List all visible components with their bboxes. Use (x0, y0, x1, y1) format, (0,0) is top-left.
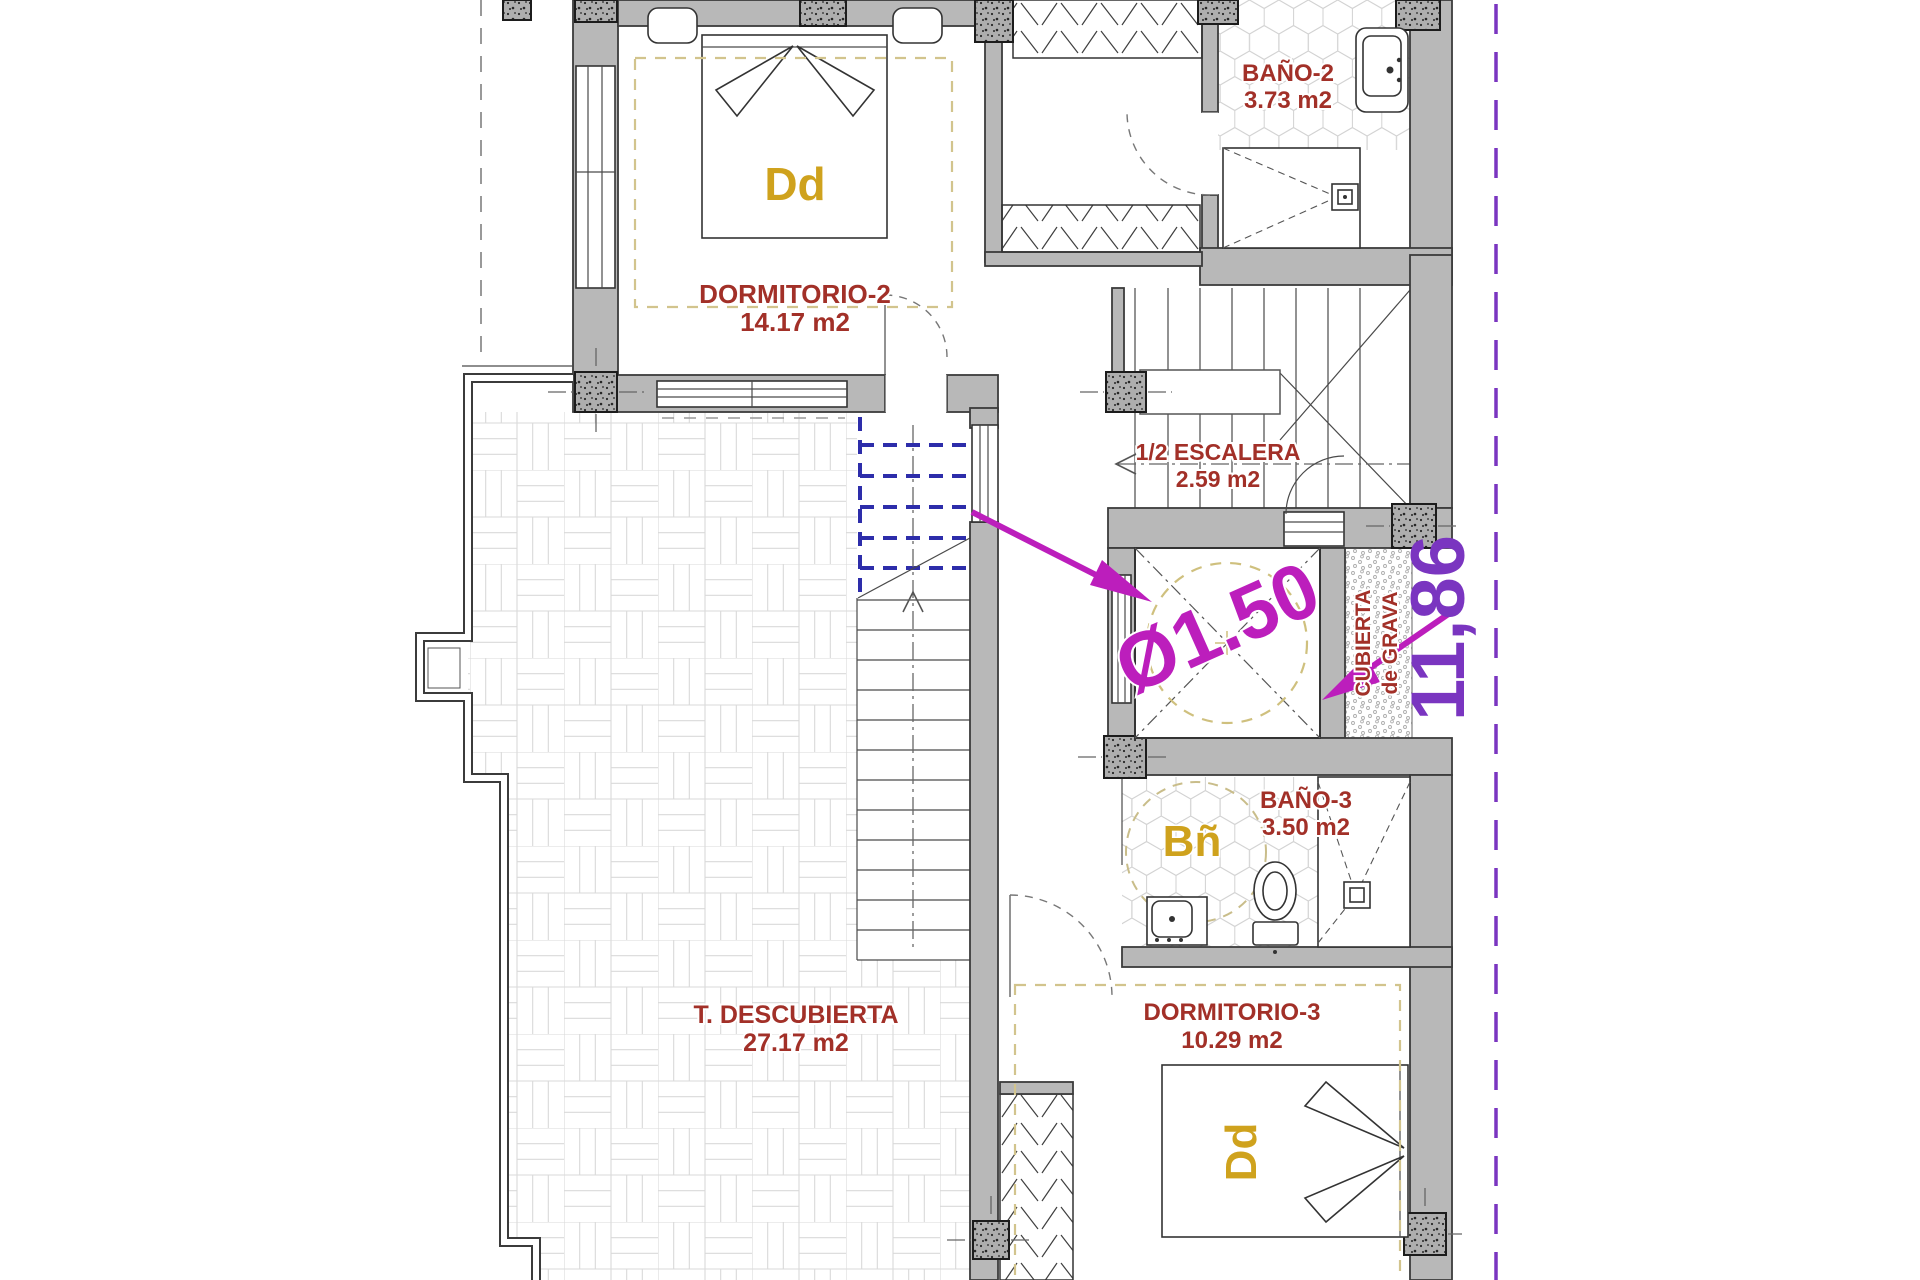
sink-bano2 (1356, 28, 1408, 112)
label-dormitorio2-area: 14.17 m2 (740, 307, 850, 337)
label-dormitorio2-name: DORMITORIO-2 (699, 279, 891, 309)
door-gap-dormitorio2 (885, 375, 947, 412)
label-right-dimension: 11,86 (1396, 535, 1481, 721)
nightstand-right (893, 8, 942, 43)
floor-plan-drawing: DORMITORIO-2 14.17 m2 Dd BAÑO-2 3.73 m2 … (0, 0, 1920, 1280)
door-gap-bano2 (1202, 112, 1218, 195)
label-dormitorio3-area: 10.29 m2 (1181, 1027, 1282, 1054)
terrace-paving (468, 412, 970, 1280)
label-bath-bano3: Bñ (1163, 817, 1222, 866)
label-bano3-name: BAÑO-3 (1260, 786, 1352, 814)
label-bed-dormitorio3: Dd (1217, 1123, 1266, 1182)
toilet-bano3 (1253, 862, 1298, 954)
label-bed-dormitorio2: Dd (764, 158, 825, 210)
shower-bano2 (1223, 148, 1360, 248)
closet-top (1013, 0, 1202, 58)
label-bano3-area: 3.50 m2 (1262, 814, 1350, 841)
label-escalera-area: 2.59 m2 (1176, 466, 1260, 492)
bed-dormitorio3 (1162, 1065, 1408, 1237)
floor-plan-canvas: DORMITORIO-2 14.17 m2 Dd BAÑO-2 3.73 m2 … (0, 0, 1920, 1280)
label-bano2-name: BAÑO-2 (1242, 59, 1334, 87)
label-terraza-area: 27.17 m2 (743, 1029, 849, 1057)
vanity-bano3 (1147, 897, 1207, 945)
closet-dormitorio3 (1000, 1094, 1073, 1280)
label-bano2-area: 3.73 m2 (1244, 87, 1332, 114)
half-stair (1116, 288, 1450, 516)
label-escalera-name: 1/2 ESCALERA (1136, 439, 1301, 465)
label-dormitorio3-name: DORMITORIO-3 (1144, 999, 1321, 1026)
stair-down (857, 417, 970, 960)
nightstand-left (648, 8, 697, 43)
stair-above-dashed (860, 417, 970, 597)
closet-hall (1002, 205, 1200, 252)
door-gap-half-stair (1284, 512, 1344, 546)
label-terraza-name: T. DESCUBIERTA (693, 1001, 898, 1029)
label-cubierta-line1: CUBIERTA (1352, 590, 1375, 697)
